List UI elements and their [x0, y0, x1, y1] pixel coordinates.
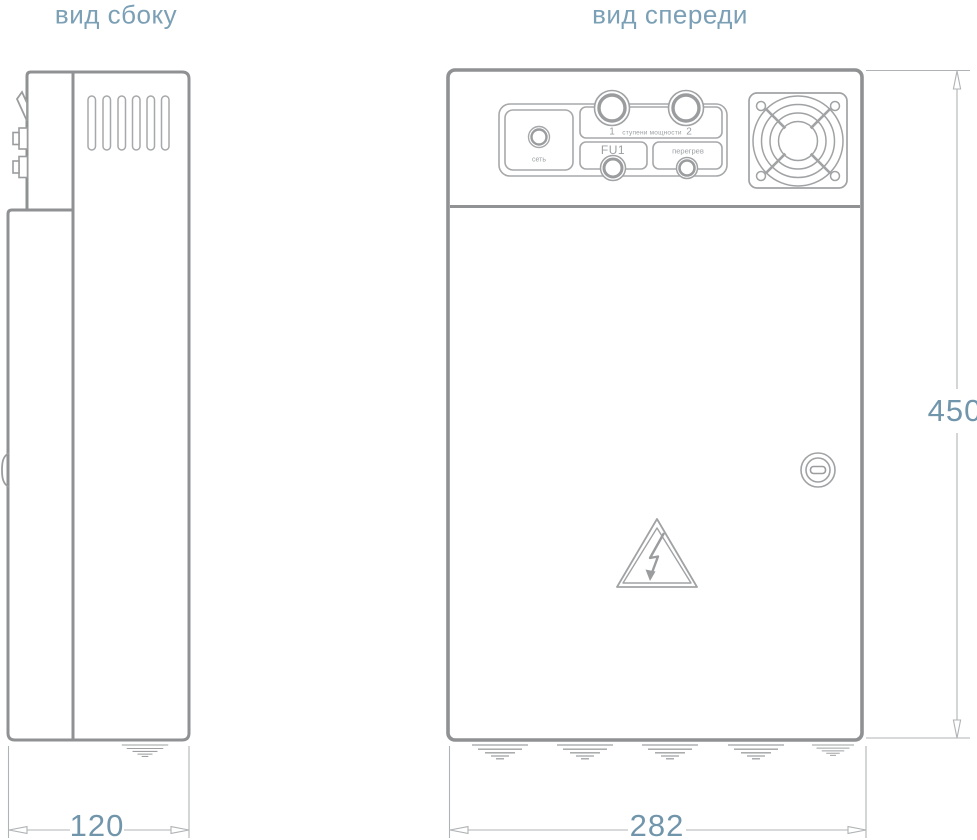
- ground-symbol: [122, 745, 168, 756]
- stage-1-label: 1: [609, 127, 615, 138]
- dim-side-depth-label: 120: [70, 808, 125, 840]
- power-indicator-lamp: [529, 127, 550, 148]
- overheat-label: перегрев: [672, 147, 704, 156]
- side-view-drawing: [8, 72, 189, 740]
- drawing-sheet: вид сбоку вид спереди 120 282 450 сеть 1…: [0, 0, 977, 840]
- ground-symbol: [728, 745, 784, 759]
- technical-drawing-canvas: [0, 0, 977, 840]
- ground-symbol: [812, 745, 854, 755]
- stage-2-label: 2: [686, 127, 692, 138]
- power-label: сеть: [532, 157, 546, 164]
- ground-symbol: [642, 745, 698, 759]
- fuse-indicator: [601, 156, 626, 181]
- side-view-title: вид сбоку: [55, 0, 177, 31]
- pipe-stubs: [13, 128, 28, 178]
- key-lock-icon[interactable]: [801, 453, 835, 487]
- stages-label: ступени мощности: [622, 129, 681, 136]
- stage-knob-2[interactable]: [669, 91, 704, 126]
- dim-front-width-label: 282: [630, 808, 685, 840]
- side-lower-front-panel: [8, 210, 73, 740]
- fan-grille-icon: [749, 93, 847, 188]
- overheat-indicator: [677, 158, 698, 179]
- ground-symbols: [122, 745, 854, 759]
- fuse-label: FU1: [601, 143, 625, 157]
- front-view-title: вид спереди: [592, 0, 748, 31]
- ground-symbol: [472, 745, 528, 759]
- ground-symbol: [557, 745, 613, 759]
- dim-height-label: 450: [928, 393, 977, 429]
- stage-knob-1[interactable]: [595, 91, 630, 126]
- side-upper-front-panel: [27, 72, 73, 210]
- side-body-outline: [73, 72, 189, 740]
